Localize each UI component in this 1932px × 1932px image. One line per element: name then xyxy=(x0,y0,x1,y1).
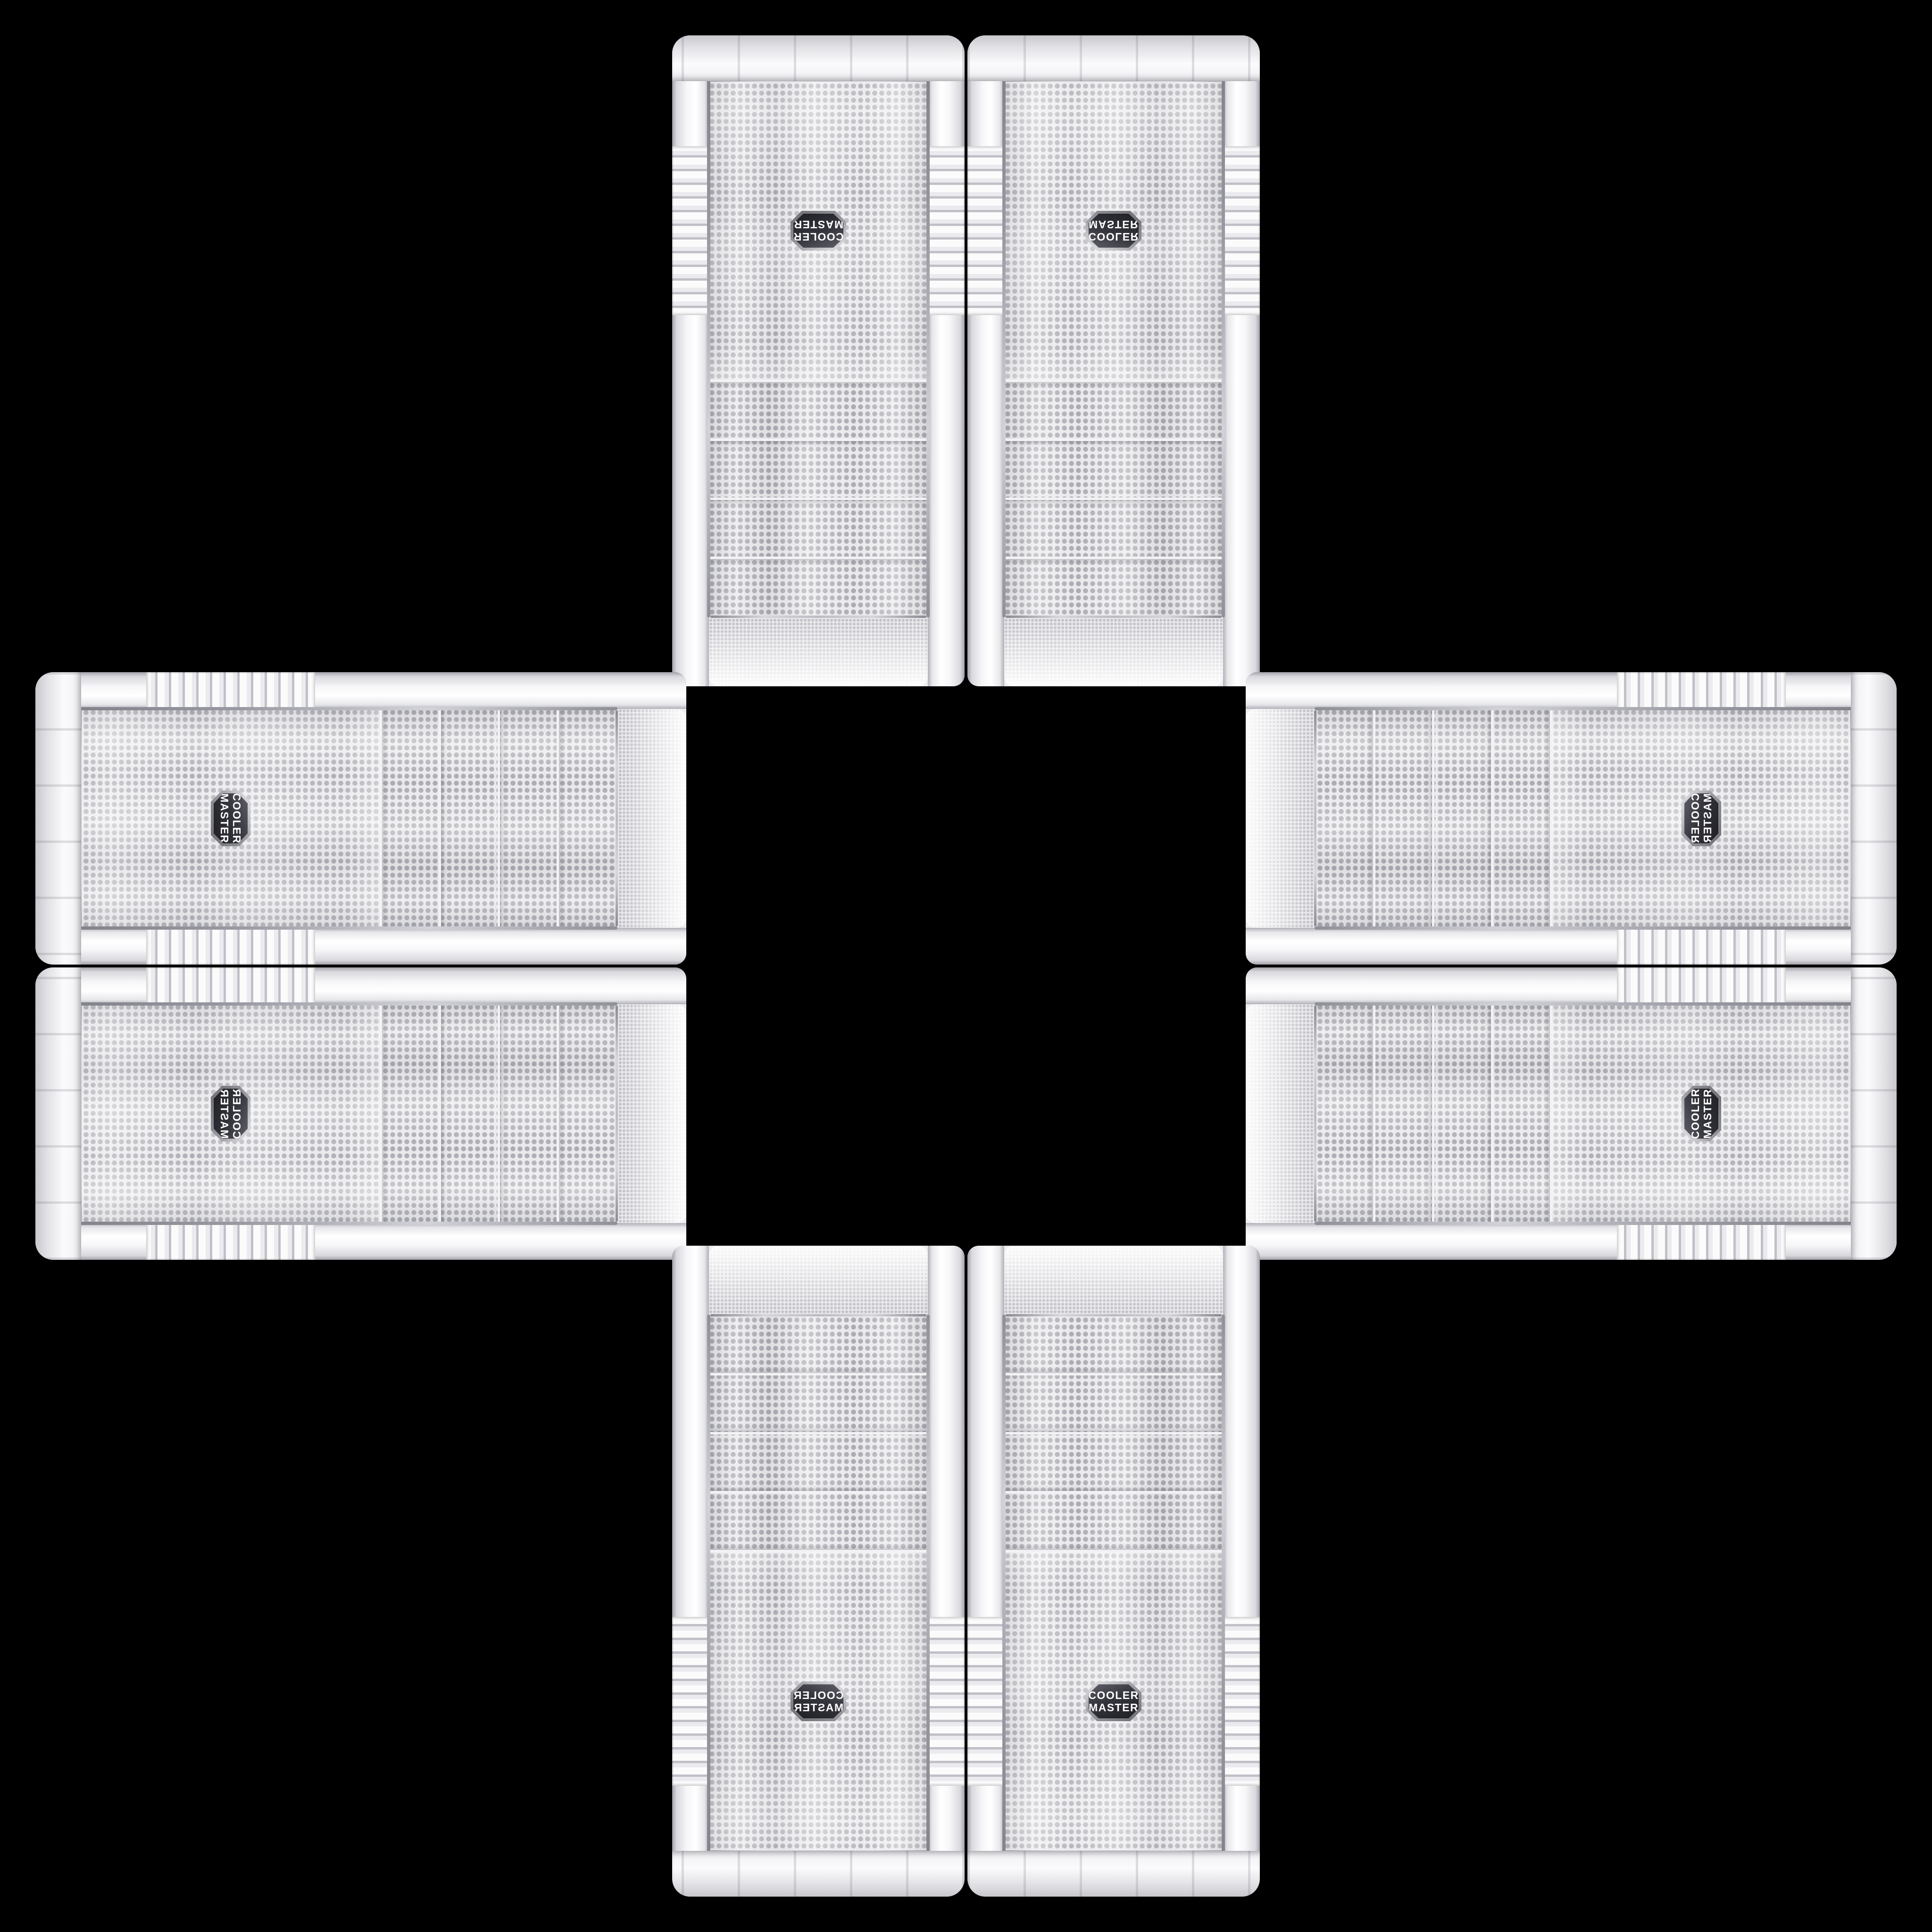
badge-text-cooler: COOLER xyxy=(232,793,242,843)
chrome-trim-left xyxy=(1315,707,1853,710)
top-cap-mesh xyxy=(709,1246,928,1316)
case-front-panel: COOLER MASTER xyxy=(672,35,965,686)
case-front-panel: COOLER MASTER xyxy=(967,1246,1260,1897)
side-rail-left xyxy=(35,672,686,709)
chrome-trim-top xyxy=(711,1314,926,1316)
badge-face: COOLER MASTER xyxy=(214,1089,248,1139)
rail-grip-ribs xyxy=(1617,672,1786,709)
case-front-panel: COOLER MASTER xyxy=(35,967,686,1260)
drive-bay-cover xyxy=(1434,709,1493,928)
cooler-master-badge: COOLER MASTER xyxy=(211,791,250,846)
pc-case-bottom-arm-right: COOLER MASTER xyxy=(967,1246,1260,1897)
pc-case-bottom-arm-left: COOLER MASTER xyxy=(672,1246,965,1897)
top-cap-mesh xyxy=(1246,1004,1316,1223)
pc-case-left-arm-bottom: COOLER MASTER xyxy=(35,967,686,1260)
chrome-trim-right xyxy=(707,79,710,617)
drive-bay-cover xyxy=(1004,1493,1223,1552)
side-rail-right xyxy=(1223,1246,1260,1897)
drive-bay-cover xyxy=(1004,439,1223,498)
rail-grip-ribs xyxy=(1617,967,1786,1004)
chrome-trim-top xyxy=(616,711,618,926)
badge-text-master: MASTER xyxy=(1089,219,1139,230)
side-rail-right xyxy=(672,1246,709,1897)
side-rail-left xyxy=(1246,672,1897,709)
drive-bay-cover xyxy=(380,1004,439,1223)
drive-bay-cover xyxy=(1316,709,1375,928)
chrome-trim-top xyxy=(1006,616,1221,618)
badge-text-master: MASTER xyxy=(793,219,843,230)
drive-bay-cover xyxy=(709,1375,928,1434)
drive-bay-cover xyxy=(1004,380,1223,439)
drive-bay-cover xyxy=(709,1316,928,1375)
drive-bay-covers xyxy=(1004,380,1223,616)
rail-grip-ribs xyxy=(928,1617,965,1786)
drive-bay-covers xyxy=(1004,1316,1223,1552)
drive-bay-cover xyxy=(709,498,928,557)
case-front-panel: COOLER MASTER xyxy=(35,672,686,965)
badge-face: COOLER MASTER xyxy=(793,1684,843,1718)
drive-bay-cover xyxy=(1493,709,1552,928)
drive-bay-cover xyxy=(1004,498,1223,557)
badge-face: COOLER MASTER xyxy=(214,793,248,843)
product-collage: COOLER MASTER xyxy=(0,0,1932,1932)
foot-bezel xyxy=(967,35,1260,81)
cooler-master-badge: COOLER MASTER xyxy=(791,1682,846,1721)
badge-text-cooler: COOLER xyxy=(1088,232,1139,242)
badge-face: COOLER MASTER xyxy=(1089,1684,1139,1718)
top-cap-mesh xyxy=(1004,1246,1223,1316)
drive-bay-cover xyxy=(380,709,439,928)
drive-bay-cover xyxy=(1493,1004,1552,1223)
rail-grip-ribs xyxy=(146,967,316,1004)
drive-bay-cover xyxy=(557,1004,616,1223)
chrome-trim-right xyxy=(79,926,617,930)
chrome-trim-left xyxy=(926,1315,930,1853)
chrome-trim-left xyxy=(1002,79,1006,617)
chrome-trim-top xyxy=(616,1006,618,1221)
foot-bezel xyxy=(672,35,965,81)
drive-bay-cover xyxy=(1004,1316,1223,1375)
cooler-master-badge: COOLER MASTER xyxy=(1682,1086,1721,1141)
drive-bay-cover xyxy=(709,1493,928,1552)
drive-bay-cover xyxy=(709,439,928,498)
top-cap-mesh xyxy=(616,1004,686,1223)
drive-bay-cover xyxy=(439,709,498,928)
cooler-master-badge: COOLER MASTER xyxy=(211,1086,250,1141)
side-rail-right xyxy=(672,35,709,686)
chrome-trim-left xyxy=(926,79,930,617)
side-rail-right xyxy=(1246,967,1897,1004)
side-rail-right xyxy=(35,967,686,1004)
cooler-master-badge: COOLER MASTER xyxy=(1086,211,1141,250)
chrome-trim-right xyxy=(1222,1315,1225,1853)
rail-grip-ribs xyxy=(1223,146,1260,316)
drive-bay-cover xyxy=(709,380,928,439)
badge-face: COOLER MASTER xyxy=(793,214,843,248)
chrome-trim-top xyxy=(1314,1006,1316,1221)
badge-text-master: MASTER xyxy=(1702,793,1713,843)
drive-bay-covers xyxy=(380,709,616,928)
chrome-trim-left xyxy=(1315,1222,1853,1225)
rail-grip-ribs xyxy=(1223,1617,1260,1786)
rail-grip-ribs xyxy=(928,146,965,316)
foot-bezel xyxy=(1851,967,1897,1260)
drive-bay-cover xyxy=(498,1004,557,1223)
drive-bay-cover xyxy=(439,1004,498,1223)
badge-text-master: MASTER xyxy=(1089,1702,1139,1713)
badge-text-master: MASTER xyxy=(1702,1089,1713,1139)
rail-grip-ribs xyxy=(672,146,709,316)
cooler-master-badge: COOLER MASTER xyxy=(1682,791,1721,846)
badge-text-cooler: COOLER xyxy=(1690,793,1701,843)
foot-bezel xyxy=(672,1851,965,1897)
rail-grip-ribs xyxy=(1617,1223,1786,1260)
cooler-master-badge: COOLER MASTER xyxy=(1086,1682,1141,1721)
drive-bay-cover xyxy=(1375,1004,1434,1223)
top-cap-mesh xyxy=(616,709,686,928)
foot-bezel xyxy=(967,1851,1260,1897)
case-front-panel: COOLER MASTER xyxy=(1246,967,1897,1260)
badge-text-cooler: COOLER xyxy=(232,1088,242,1139)
badge-face: COOLER MASTER xyxy=(1684,793,1718,843)
drive-bay-covers xyxy=(1316,709,1552,928)
rail-grip-ribs xyxy=(146,672,316,709)
chrome-trim-right xyxy=(707,1315,710,1853)
badge-text-cooler: COOLER xyxy=(793,1690,843,1701)
pc-case-top-arm-right: COOLER MASTER xyxy=(967,35,1260,686)
case-front-panel: COOLER MASTER xyxy=(672,1246,965,1897)
rail-grip-ribs xyxy=(967,146,1004,316)
foot-bezel xyxy=(1851,672,1897,965)
chrome-trim-top xyxy=(711,616,926,618)
pc-case-right-arm-bottom: COOLER MASTER xyxy=(1246,967,1897,1260)
rail-grip-ribs xyxy=(146,1223,316,1260)
top-cap-mesh xyxy=(1246,709,1316,928)
chrome-trim-top xyxy=(1314,711,1316,926)
side-rail-right xyxy=(1223,35,1260,686)
side-rail-left xyxy=(1246,1223,1897,1260)
case-front-panel: COOLER MASTER xyxy=(1246,672,1897,965)
side-rail-left xyxy=(967,35,1004,686)
side-rail-left xyxy=(928,35,965,686)
drive-bay-covers xyxy=(380,1004,616,1223)
pc-case-left-arm-top: COOLER MASTER xyxy=(35,672,686,965)
drive-bay-cover xyxy=(709,557,928,616)
chrome-trim-left xyxy=(1002,1315,1006,1853)
drive-bay-covers xyxy=(709,1316,928,1552)
badge-text-master: MASTER xyxy=(219,1089,230,1139)
side-rail-right xyxy=(1246,928,1897,965)
rail-grip-ribs xyxy=(146,928,316,965)
side-rail-left xyxy=(35,1223,686,1260)
badge-face: COOLER MASTER xyxy=(1684,1089,1718,1139)
chrome-trim-top xyxy=(1006,1314,1221,1316)
rail-grip-ribs xyxy=(672,1617,709,1786)
drive-bay-cover xyxy=(1004,557,1223,616)
case-front-panel: COOLER MASTER xyxy=(967,35,1260,686)
drive-bay-covers xyxy=(709,380,928,616)
drive-bay-cover xyxy=(709,1434,928,1493)
drive-bay-cover xyxy=(1004,1434,1223,1493)
badge-text-cooler: COOLER xyxy=(793,232,843,242)
drive-bay-cover xyxy=(1004,1375,1223,1434)
pc-case-top-arm-left: COOLER MASTER xyxy=(672,35,965,686)
rail-grip-ribs xyxy=(967,1617,1004,1786)
chrome-trim-right xyxy=(79,1002,617,1006)
drive-bay-cover xyxy=(1434,1004,1493,1223)
chrome-trim-left xyxy=(79,1222,617,1225)
drive-bay-cover xyxy=(557,709,616,928)
badge-text-cooler: COOLER xyxy=(1088,1690,1139,1701)
side-rail-left xyxy=(967,1246,1004,1897)
drive-bay-cover xyxy=(1375,709,1434,928)
pc-case-right-arm-top: COOLER MASTER xyxy=(1246,672,1897,965)
rail-grip-ribs xyxy=(1617,928,1786,965)
top-cap-mesh xyxy=(709,616,928,686)
top-cap-mesh xyxy=(1004,616,1223,686)
badge-text-cooler: COOLER xyxy=(1690,1088,1701,1139)
side-rail-left xyxy=(928,1246,965,1897)
drive-bay-cover xyxy=(1316,1004,1375,1223)
foot-bezel xyxy=(35,672,81,965)
badge-text-master: MASTER xyxy=(793,1702,843,1713)
badge-text-master: MASTER xyxy=(219,793,230,843)
drive-bay-cover xyxy=(498,709,557,928)
chrome-trim-right xyxy=(1222,79,1225,617)
chrome-trim-left xyxy=(79,707,617,710)
drive-bay-covers xyxy=(1316,1004,1552,1223)
side-rail-right xyxy=(35,928,686,965)
cooler-master-badge: COOLER MASTER xyxy=(791,211,846,250)
badge-face: COOLER MASTER xyxy=(1089,214,1139,248)
chrome-trim-right xyxy=(1315,926,1853,930)
chrome-trim-right xyxy=(1315,1002,1853,1006)
foot-bezel xyxy=(35,967,81,1260)
